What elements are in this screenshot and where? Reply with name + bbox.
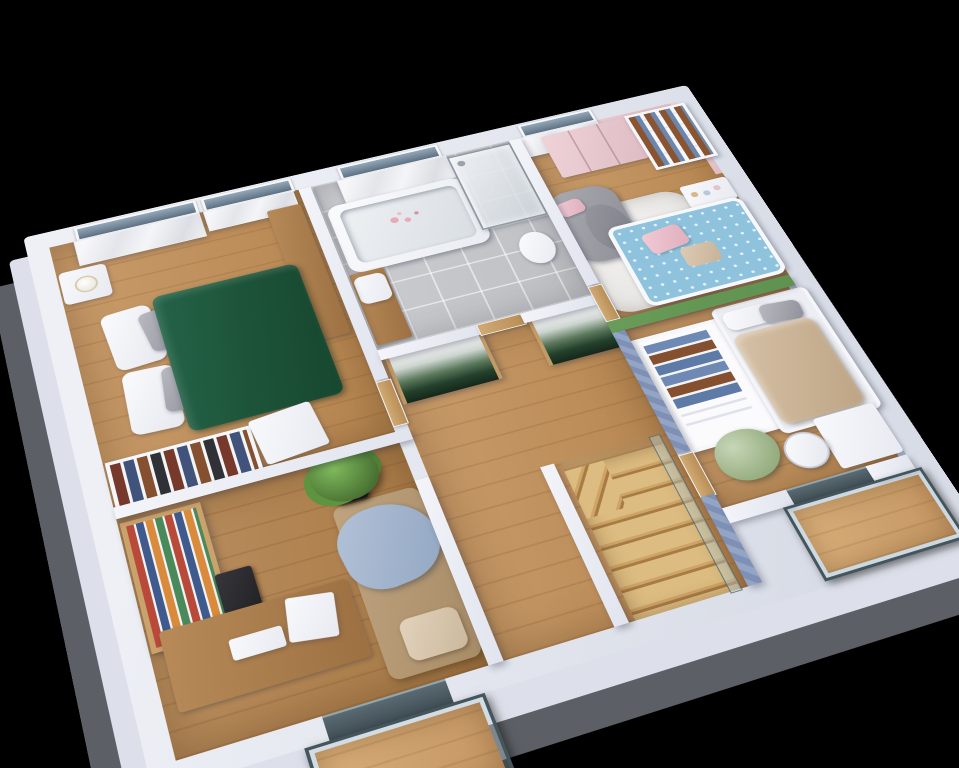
laptop	[284, 592, 339, 643]
wardrobe-door-line-1	[567, 131, 592, 172]
toys	[689, 191, 699, 197]
shower-head	[456, 160, 466, 167]
crib-beige-pillow	[678, 240, 724, 268]
apartment-slab	[23, 85, 959, 768]
scene-background	[0, 0, 959, 768]
wardrobe-door-line-2	[595, 124, 621, 165]
floorplan-3d	[23, 85, 959, 768]
